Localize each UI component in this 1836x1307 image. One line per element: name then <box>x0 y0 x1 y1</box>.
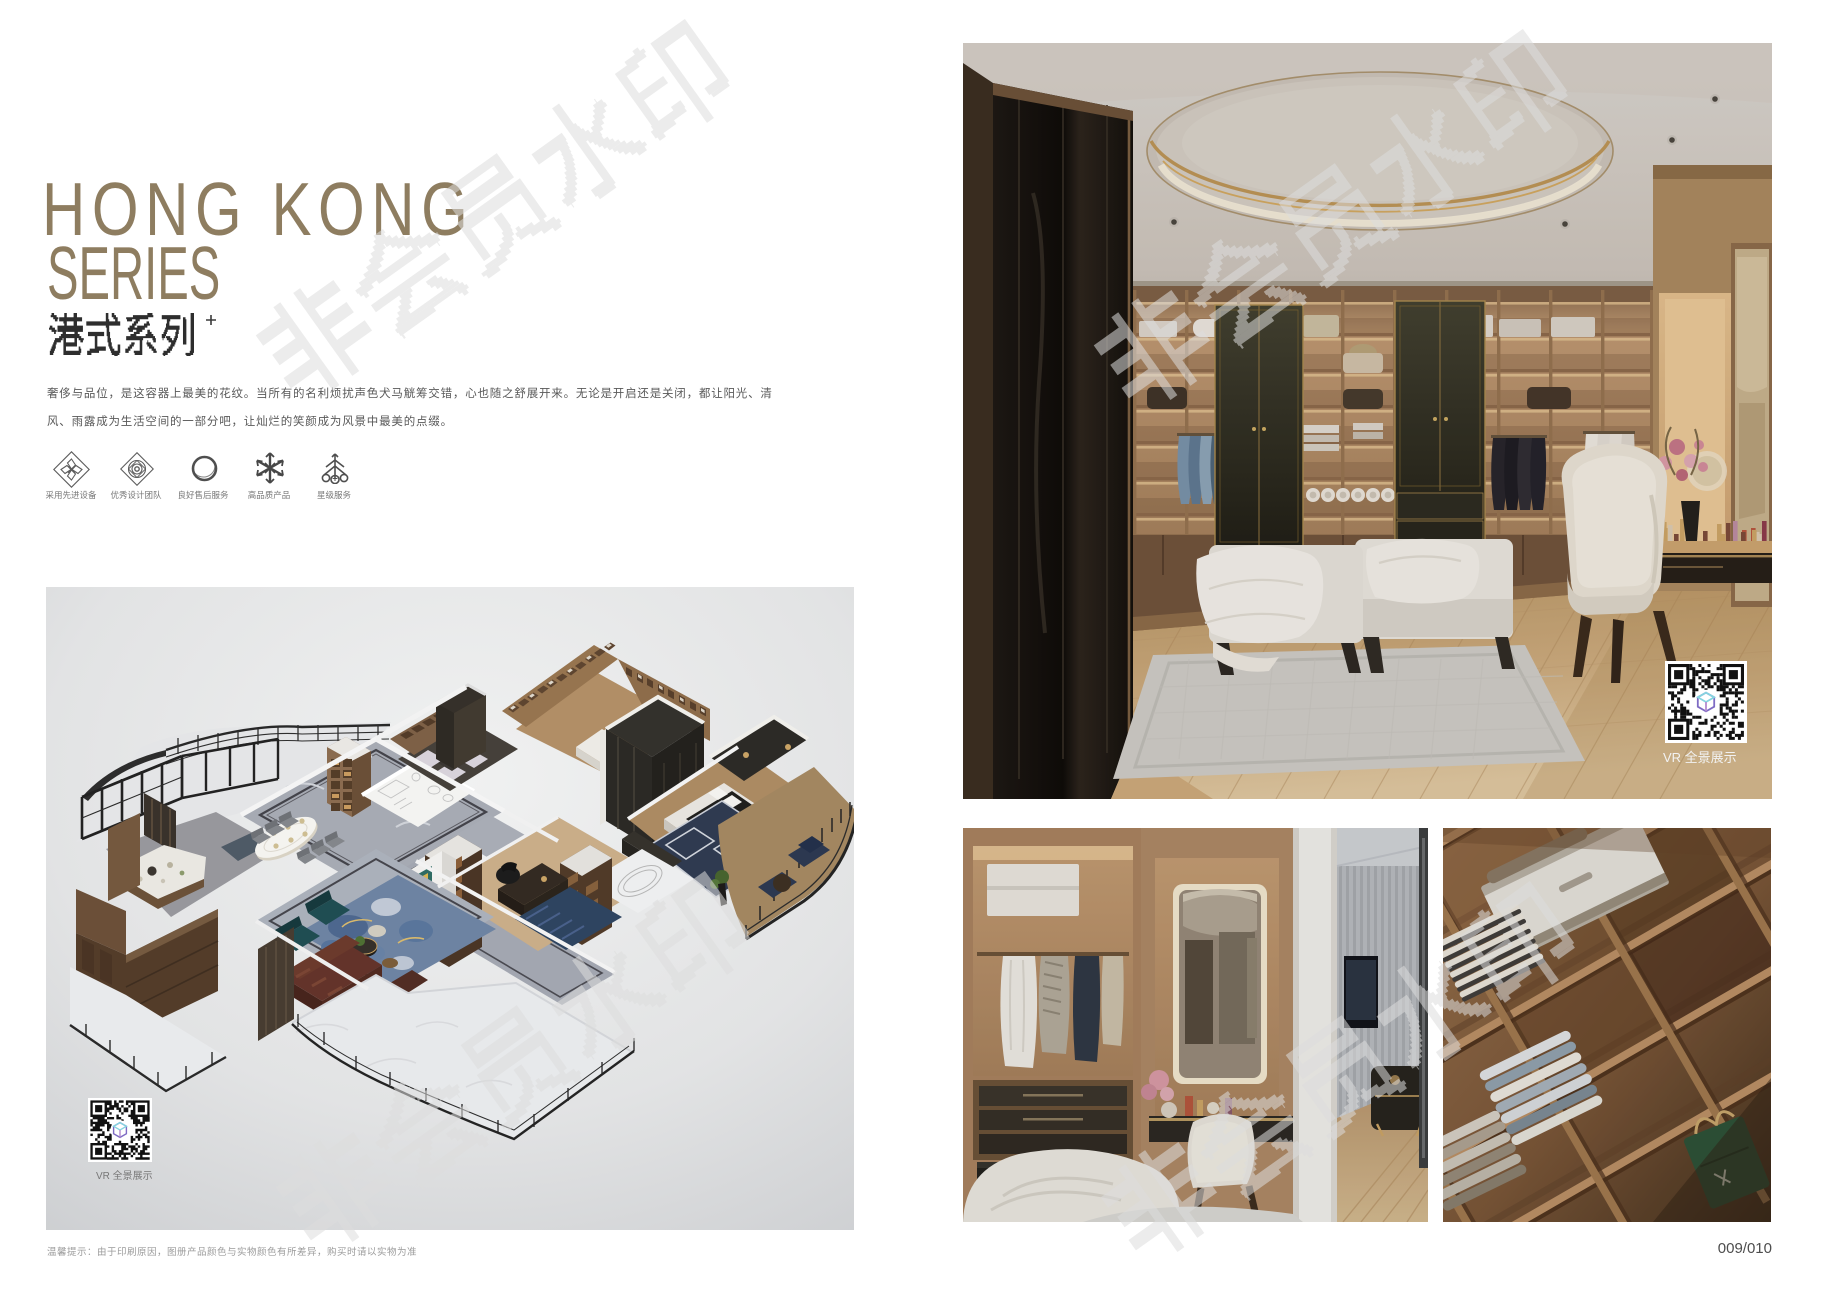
svg-text:VR 全景展示: VR 全景展示 <box>1663 750 1737 765</box>
svg-text:VR 全景展示: VR 全景展示 <box>96 1169 153 1182</box>
